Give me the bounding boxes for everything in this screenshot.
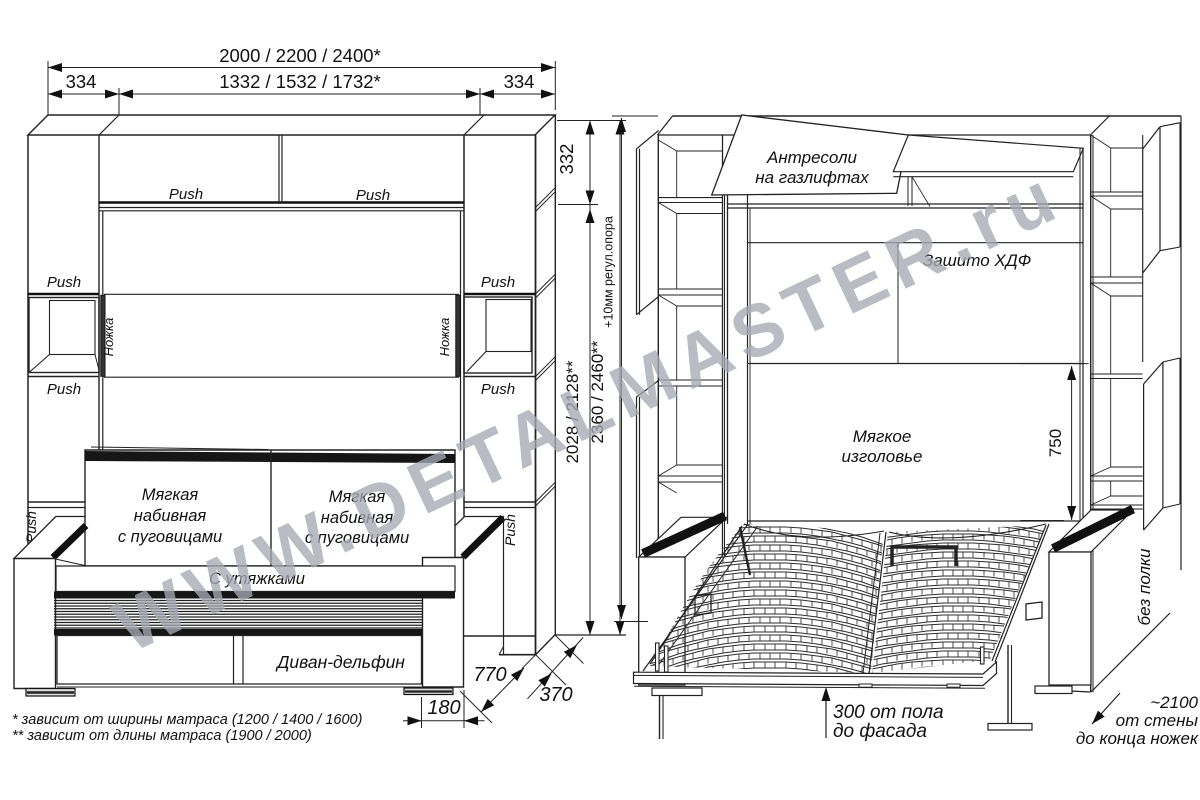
svg-text:Push: Push xyxy=(169,186,203,203)
svg-text:Push: Push xyxy=(356,187,390,204)
svg-text:2000 / 2200 / 2400*: 2000 / 2200 / 2400* xyxy=(219,45,381,66)
svg-text:Push: Push xyxy=(47,274,81,291)
svg-text:+10мм регул.опора: +10мм регул.опора xyxy=(602,216,616,328)
svg-text:300 от пола: 300 от пола xyxy=(833,702,944,723)
svg-text:без полки: без полки xyxy=(1135,548,1154,626)
svg-text:Мягкое: Мягкое xyxy=(853,427,912,446)
svg-text:Push: Push xyxy=(481,274,515,291)
svg-text:334: 334 xyxy=(66,71,97,92)
svg-text:Диван-дельфин: Диван-дельфин xyxy=(275,652,405,672)
svg-text:180: 180 xyxy=(427,697,460,719)
svg-text:до конца ножек: до конца ножек xyxy=(1076,729,1199,748)
svg-text:334: 334 xyxy=(504,71,535,92)
svg-text:от стены: от стены xyxy=(1116,711,1199,730)
svg-text:Push: Push xyxy=(502,514,518,546)
svg-text:Ножка: Ножка xyxy=(437,318,452,357)
svg-text:набивная: набивная xyxy=(134,507,207,525)
svg-text:Push: Push xyxy=(47,381,81,398)
svg-text:332: 332 xyxy=(556,144,577,175)
svg-text:~2100: ~2100 xyxy=(1150,693,1198,712)
svg-text:Push: Push xyxy=(481,381,515,398)
svg-text:370: 370 xyxy=(539,684,572,706)
svg-text:Ножка: Ножка xyxy=(101,318,116,357)
svg-text:на газлифтах: на газлифтах xyxy=(755,168,869,187)
svg-text:** зависит от длины матраса (1: ** зависит от длины матраса (1900 / 2000… xyxy=(12,728,312,744)
svg-text:770: 770 xyxy=(473,664,506,686)
svg-text:Антресоли: Антресоли xyxy=(766,148,858,167)
svg-text:Мягкая: Мягкая xyxy=(142,486,199,504)
svg-text:* зависит от ширины матраса (1: * зависит от ширины матраса (1200 / 1400… xyxy=(12,712,362,728)
svg-text:до фасада: до фасада xyxy=(833,721,927,742)
svg-text:1332 / 1532 / 1732*: 1332 / 1532 / 1732* xyxy=(219,71,381,92)
svg-text:WWW.DETALMASTER.ru: WWW.DETALMASTER.ru xyxy=(102,152,1075,668)
svg-text:изголовье: изголовье xyxy=(842,447,923,466)
svg-text:750: 750 xyxy=(1046,429,1065,457)
